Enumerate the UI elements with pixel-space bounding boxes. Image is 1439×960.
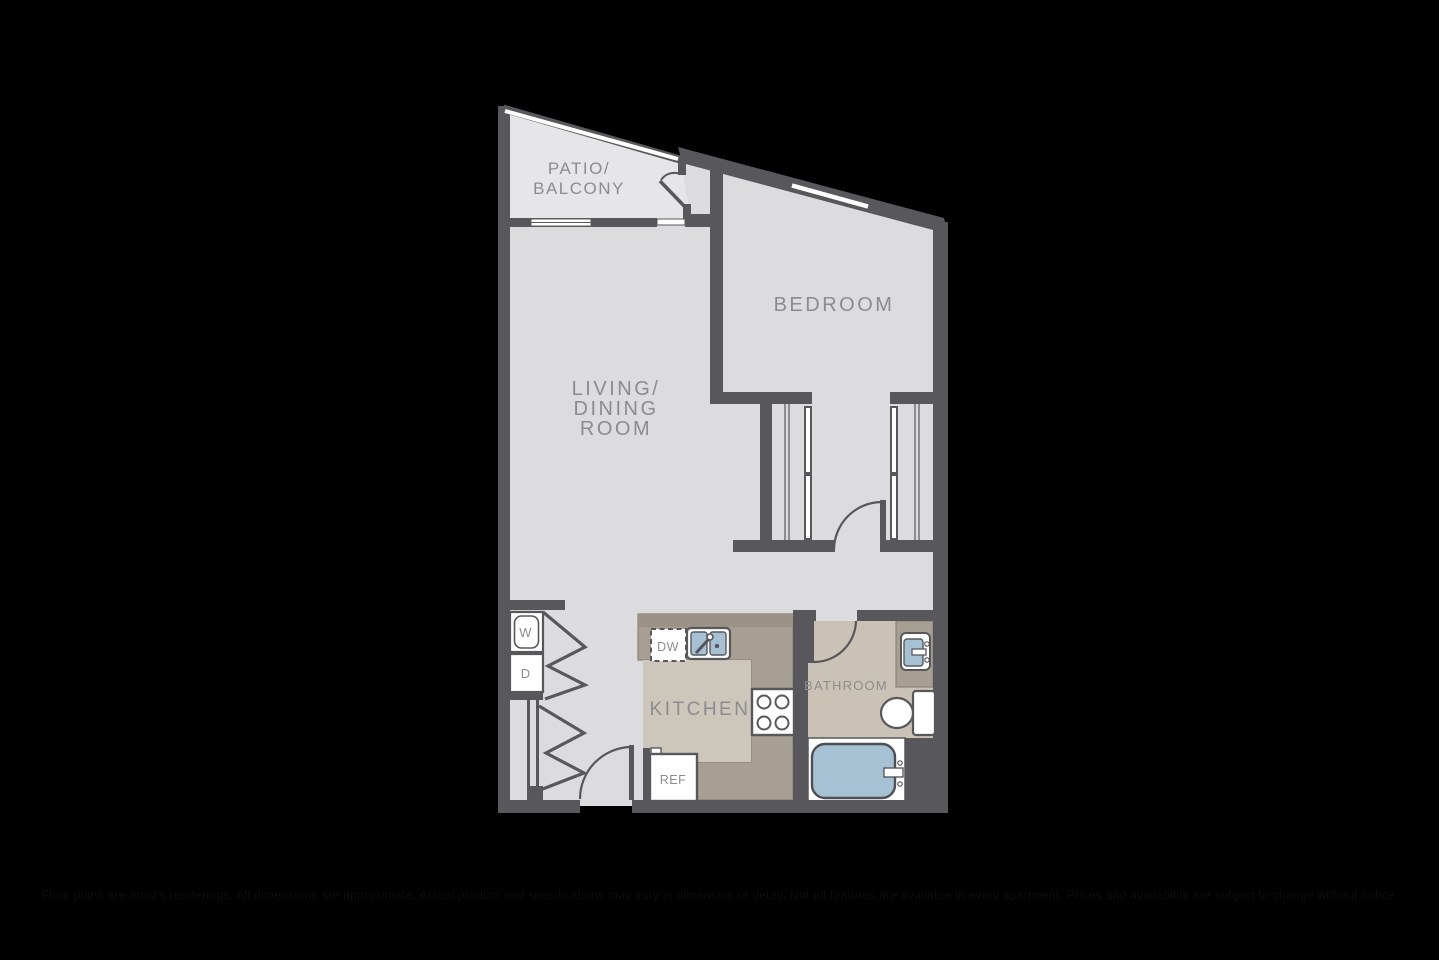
dryer-label: D	[521, 666, 532, 681]
floorplan-page: PATIO/ BALCONY BEDROOM LIVING/ DINING RO…	[0, 0, 1439, 960]
floorplan-svg: PATIO/ BALCONY BEDROOM LIVING/ DINING RO…	[0, 0, 1439, 960]
living-label-line2: DINING	[574, 398, 659, 420]
stove-icon	[752, 689, 794, 735]
wall-living-bedroom-divider	[710, 168, 723, 404]
wall-left	[498, 106, 510, 812]
wall-closet-cap-right	[890, 392, 948, 404]
kitchen-upper-cabinet	[638, 614, 793, 627]
wall-bedroom-bottom-left	[733, 540, 835, 552]
living-label-line3: ROOM	[580, 418, 652, 440]
bathroom-label: BATHROOM	[804, 678, 888, 693]
wall-bath-top	[857, 610, 933, 621]
kitchen-label: KITCHEN	[650, 699, 751, 720]
wall-lower-closet-line1	[527, 700, 530, 788]
washer-label: W	[519, 625, 532, 640]
entry-door-leaf	[629, 745, 634, 800]
wall-bath-chase	[905, 738, 933, 802]
wall-closet-back-left	[760, 400, 772, 544]
wall-bottom-left	[498, 800, 580, 813]
bathtub-icon	[812, 744, 903, 798]
wall-wd-closet-top	[498, 600, 565, 610]
wall-bath-top-stub	[808, 610, 816, 621]
bathroom-sink-icon	[901, 633, 930, 670]
wall-kitchen-bath-divider	[793, 610, 808, 802]
kitchen-sink-icon	[687, 628, 730, 659]
bathroom-door-leaf	[808, 621, 814, 663]
dishwasher-label: DW	[657, 640, 679, 654]
disclaimer-text: Floor plans are artist's renderings. All…	[41, 888, 1398, 902]
patio-label-line2: BALCONY	[533, 179, 625, 198]
wall-bedroom-bottom-right	[882, 540, 948, 552]
patio-label-line1: PATIO/	[548, 159, 610, 178]
bedroom-door-leaf	[880, 500, 886, 552]
patio-door-threshold	[657, 219, 685, 225]
wall-lower-closet-line2	[536, 700, 539, 788]
living-label-line1: LIVING/	[572, 378, 661, 400]
refrigerator-label: REF	[660, 773, 687, 787]
bedroom-label: BEDROOM	[774, 294, 895, 316]
